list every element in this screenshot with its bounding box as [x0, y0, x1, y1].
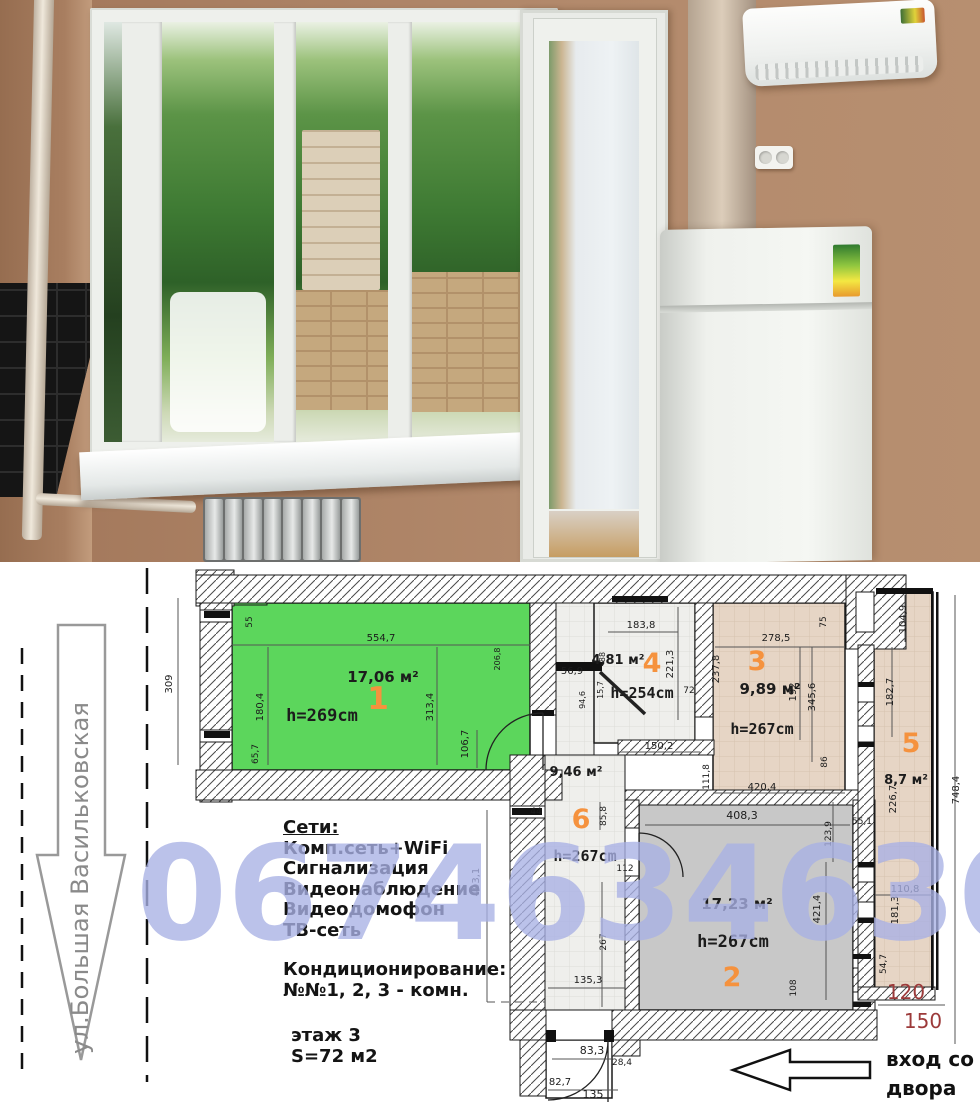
dim-label: 110,8	[891, 884, 920, 895]
room-3-area: 9,89 м²	[739, 680, 800, 698]
dim-label: 180,4	[255, 693, 266, 722]
listing-image: ул.Большая Васильковская	[0, 0, 980, 1105]
dim-label: 554,7	[367, 633, 396, 644]
dim-label: 82,7	[549, 1077, 571, 1088]
dim-label: 106,7	[460, 730, 471, 759]
dim-label: 72	[683, 686, 694, 696]
room-6-height: h=267cm	[553, 847, 616, 865]
room-1-number: 1	[367, 681, 389, 717]
room-6-area: 9,46 м²	[550, 765, 603, 780]
room-4-area: 4,81 м²	[592, 653, 645, 668]
balcony-brick-wall	[296, 290, 388, 410]
network-item: Комп.сеть+WiFi	[283, 839, 513, 860]
network-item: Видеонаблюдение	[283, 880, 513, 901]
window-pane-right	[412, 22, 522, 442]
air-conditioner	[742, 0, 938, 87]
dim-label: 408,3	[726, 809, 758, 822]
dim-label: 56,9	[561, 666, 583, 677]
street-name-label: ул.Большая Васильковская	[66, 702, 94, 1054]
dim-label: 15,7	[596, 681, 605, 699]
dim-label: 421,4	[812, 895, 823, 924]
room-1-height: h=269cm	[286, 706, 358, 726]
dim-label: 65,7	[251, 744, 261, 764]
window-mullion	[274, 22, 296, 442]
dim-label: 111,8	[702, 764, 712, 790]
dim-label-red: 120	[887, 980, 925, 1004]
dim-label: 206,8	[493, 648, 502, 671]
window-mullion	[388, 22, 412, 442]
balcony-door-leaf	[533, 18, 657, 558]
ac-vent	[755, 56, 924, 81]
dim-label: 54,7	[879, 954, 889, 974]
floor-label: этаж 3	[291, 1026, 513, 1047]
dim-label: 313,4	[425, 693, 436, 722]
dim-label: 123,9	[824, 821, 834, 847]
dim-label: 135,3	[574, 975, 603, 986]
balcony-door	[520, 10, 668, 562]
room-2-height: h=267cm	[697, 932, 769, 952]
window-jamb	[122, 22, 162, 442]
dim-label: 86	[820, 756, 830, 768]
balcony-door-glass	[549, 41, 639, 509]
dim-label: 267	[599, 933, 609, 950]
power-outlet	[755, 146, 793, 169]
room-4-number: 4	[643, 648, 662, 679]
room-6-number: 6	[572, 804, 591, 835]
dim-label: 44	[530, 807, 542, 817]
dim-label: 278,5	[762, 633, 791, 644]
dim-label: 150,2	[645, 741, 674, 752]
radiator-fin	[303, 499, 321, 560]
room-4-height: h=254cm	[610, 684, 673, 702]
window-reflection	[170, 292, 266, 432]
dim-label: 112	[616, 864, 633, 874]
network-item: Видеодомофон	[283, 900, 513, 921]
fridge-door-seam	[660, 302, 872, 313]
window-pane-left-sliver	[104, 22, 122, 442]
room-3-height: h=267cm	[730, 720, 793, 738]
room-2-number: 2	[723, 962, 742, 993]
stone-pillar	[302, 130, 380, 290]
hallway	[556, 603, 594, 763]
room-5-area: 8,7 м²	[884, 773, 928, 788]
radiator-fin	[322, 499, 340, 560]
radiator-fin	[244, 499, 262, 560]
dim-label: 183,8	[627, 620, 656, 631]
dim-label: 748,4	[951, 776, 962, 805]
radiator-fin	[283, 499, 301, 560]
dim-label: 221,3	[665, 650, 676, 679]
window-pane-center	[296, 22, 388, 442]
dim-label: 85,8	[599, 806, 609, 826]
dim-label: 182,7	[885, 678, 896, 707]
dim-label: 55,1	[852, 817, 872, 827]
window-pane-left	[162, 22, 274, 442]
radiator-fin	[225, 499, 243, 560]
entrance-label: вход со двора	[886, 1045, 980, 1103]
network-item: Сигнализация	[283, 859, 513, 880]
dim-label: 345,6	[807, 683, 818, 712]
dim-label: 108	[789, 979, 799, 996]
ac-note: №№1, 2, 3 - комн.	[283, 981, 513, 1002]
ac-title: Кондиционирование:	[283, 960, 513, 981]
radiator-fin	[342, 499, 360, 560]
dim-label: 28,4	[612, 1058, 632, 1068]
outlet-socket	[759, 151, 772, 164]
dim-label: 237,8	[711, 655, 722, 684]
room-5	[874, 592, 933, 990]
balcony-brick-wall	[412, 272, 522, 412]
radiator-fin	[205, 499, 223, 560]
refrigerator	[660, 226, 872, 562]
dim-label: 309	[164, 674, 175, 693]
networks-title: Сети:	[283, 818, 513, 839]
energy-label-icon	[833, 244, 860, 296]
dim-label: 104,9	[898, 605, 909, 634]
dim-label: 181,3	[890, 896, 901, 925]
network-item: ТВ-сеть	[283, 921, 513, 942]
kitchen-window	[90, 8, 558, 476]
apartment-photo	[0, 0, 980, 562]
dim-label: 226,7	[888, 785, 899, 814]
info-block: Сети: Комп.сеть+WiFi Сигнализация Видеон…	[283, 818, 513, 1067]
dim-label: 135	[583, 1088, 604, 1101]
total-area-label: S=72 м2	[291, 1047, 513, 1068]
dim-label: 83,3	[580, 1044, 605, 1057]
entrance-arrow	[733, 1050, 870, 1090]
dim-label: 75	[819, 616, 829, 627]
dim-label: 94,6	[578, 691, 587, 709]
ac-logo-icon	[900, 8, 925, 24]
radiator	[203, 497, 361, 562]
dim-label: 55	[245, 616, 255, 627]
outlet-socket	[776, 151, 789, 164]
dim-label-red: 150	[904, 1009, 942, 1033]
room-5-number: 5	[902, 728, 921, 759]
dim-label: 420,4	[748, 782, 777, 793]
room-3-number: 3	[748, 646, 767, 677]
radiator-fin	[264, 499, 282, 560]
balcony-floor	[549, 511, 639, 557]
room-2-area: 17,23 м²	[701, 895, 773, 913]
